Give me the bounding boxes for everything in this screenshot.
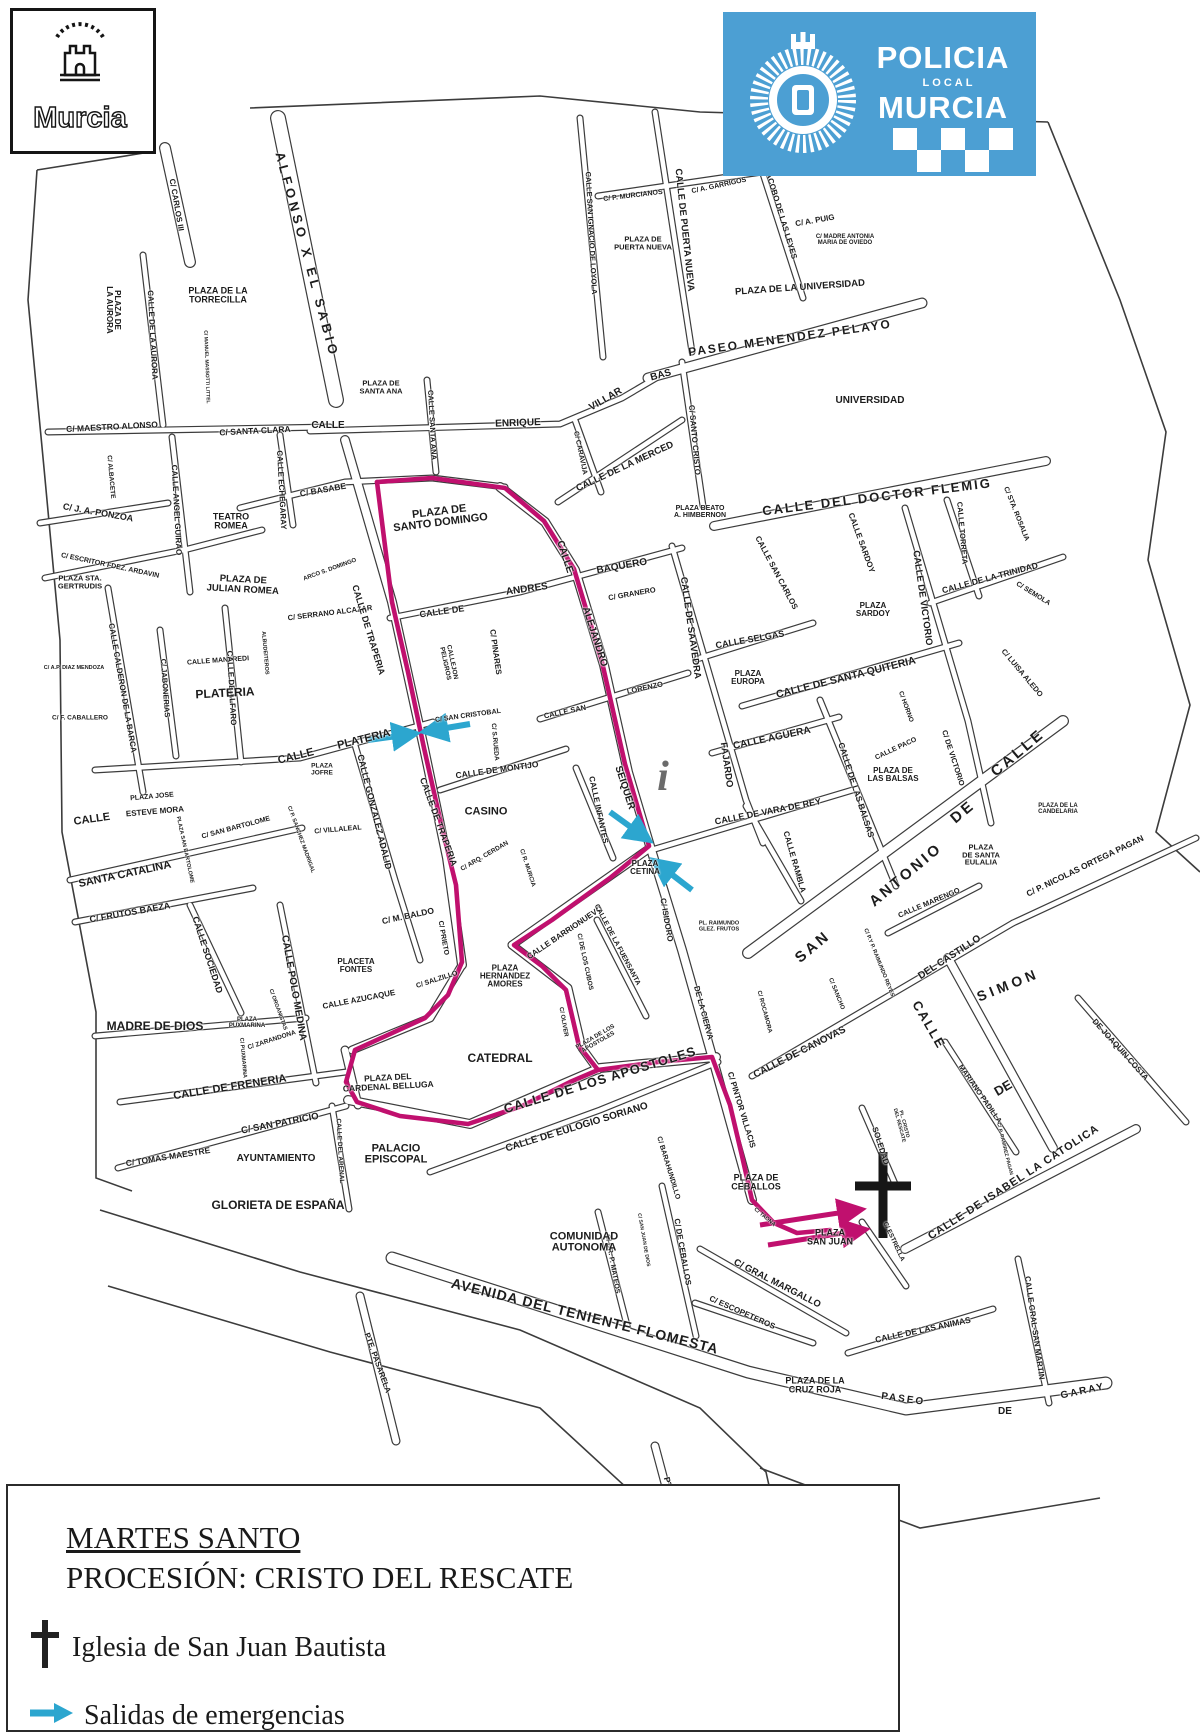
street-line-inner [332,1106,349,1209]
street-line-inner [118,1106,346,1168]
street-line-inner [352,965,462,1050]
street-line-inner [714,461,1046,526]
church-cross-icon [28,1618,62,1678]
street-line-inner [160,630,176,756]
street-line-inner [120,1072,346,1102]
legend-item-emergency: Salidas de emergencias [28,1700,898,1732]
street-line-inner [278,118,336,400]
street-line-inner [672,546,763,843]
street-line-inner [580,118,603,357]
route-end-arrow [760,1210,858,1225]
street-line-inner [712,717,839,753]
street-line-inner [930,557,1063,603]
legend-subtitle: PROCESIÓN: CRISTO DEL RESCATE [66,1560,898,1596]
street-line-inner [280,905,316,1083]
street-line-inner [947,500,979,596]
map-boundary-line [37,152,150,170]
police-text-murcia: MURCIA [878,90,1008,125]
legend-title: MARTES SANTO [66,1520,898,1556]
legend-emergency-label: Salidas de emergencias [84,1700,345,1732]
street-line-inner [700,1249,846,1333]
street-line-inner [598,1212,629,1333]
street-line-inner [888,886,979,933]
street-line-inner [597,920,646,1016]
street-line-inner [697,623,813,659]
street-line-inner [746,806,801,901]
street-line-inner [70,828,302,880]
murcia-city-logo: Murcia [10,8,156,154]
street-line-inner [95,1018,306,1036]
police-text-policia: POLICIA [877,40,1010,75]
street-line-inner [280,435,293,525]
street-line-inner [390,548,682,618]
street-line-inner [75,888,253,922]
street-line-inner [1018,1259,1049,1403]
policia-local-badge: POLICIA LOCAL MURCIA [723,12,1036,176]
street-line-inner [848,1309,993,1353]
castle-icon [57,24,103,80]
street-line-inner [682,362,703,506]
street-line-inner [172,437,190,592]
street-line-inner [742,643,959,706]
police-emblem-icon [759,32,847,144]
legend-church-label: Iglesia de San Juan Bautista [72,1632,386,1664]
street-line-inner [40,503,168,523]
map-boundary-line [1048,122,1200,872]
legend-box: MARTES SANTO PROCESIÓN: CRISTO DEL RESCA… [6,1484,900,1732]
street-line-inner [355,745,420,960]
murcia-logo-text: Murcia [33,102,127,134]
street-line-inner [45,530,262,578]
street-line-inner [948,958,1053,1148]
street-line-inner [576,768,613,858]
street-line-inner [655,112,692,352]
police-checker-pattern [893,128,1013,172]
street-line [352,965,462,1050]
street-line [95,722,433,770]
street-line-inner [440,749,566,790]
info-point-icon: i [657,754,669,800]
legend-item-church: Iglesia de San Juan Bautista [28,1618,898,1678]
map-boundary-line [28,170,132,1191]
street-line-inner [1078,998,1186,1122]
street-line-inner [345,440,462,965]
street-line-inner [662,1186,696,1336]
emergency-arrow-icon [28,1700,74,1732]
police-text-local: LOCAL [923,77,976,89]
street-line-inner [695,1303,813,1343]
city-map: i [0,0,1200,1736]
street-line-inner [1013,838,1196,923]
street-line-inner [108,588,143,792]
street-line-inner [225,608,241,762]
street-line-inner [190,905,241,1013]
street-line-inner [310,371,668,431]
procession-map-page: i C/ CARLOS IIIALFONSO X EL SABIOPLAZA D… [0,0,1200,1736]
street-line-inner [165,148,190,262]
street-line [345,440,462,965]
street-line-inner [143,255,163,425]
street-line-inner [905,1129,1136,1249]
